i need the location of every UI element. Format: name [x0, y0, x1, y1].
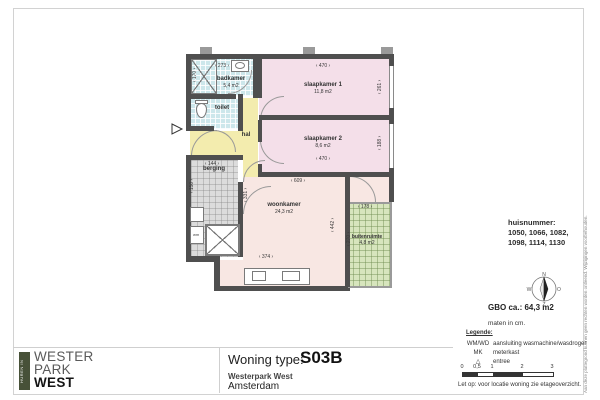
scale-tick-1: 1	[490, 364, 493, 370]
dim-sk1-height: 261	[377, 73, 383, 101]
label-toilet: toilet	[204, 105, 240, 112]
scale-seg-2	[478, 373, 493, 376]
wc-tank	[195, 100, 208, 104]
label-hal: hal	[232, 132, 260, 139]
titleblock-left-divider	[219, 347, 220, 393]
legend-key-wmwd: WM/WD	[466, 340, 490, 349]
scale-tick-0: 0	[460, 364, 463, 370]
scale-seg-4	[523, 373, 553, 376]
dim-berging-width: 144	[194, 161, 230, 167]
wall-hal-sk1-upper	[258, 54, 262, 98]
titleblock-top-divider	[13, 347, 453, 348]
huisnummer-label: huisnummer:	[508, 218, 556, 227]
dim-badkamer-width: 273	[202, 63, 242, 69]
entree-triangle-marker	[170, 122, 184, 136]
dim-berging-height: 150	[189, 173, 195, 199]
city-name: Amsterdam	[228, 381, 279, 392]
label-slaapkamer1: slaapkamer 1 11,8 m2	[293, 82, 353, 95]
floorplan-sheet: wm badkamer 5,4 m2 toilet hal berging sl…	[0, 0, 600, 400]
legend-value-wmwd: aansluiting wasmachine/wasdroger	[493, 340, 586, 349]
logo-line3: WEST	[34, 375, 74, 390]
logo-green-bar: HUREN IN	[19, 352, 30, 390]
huisnummer-block: huisnummer: 1050, 1066, 1082, 1098, 1114…	[508, 218, 580, 248]
wall-stub-3	[381, 47, 393, 54]
compass-o: O	[557, 287, 561, 293]
huisnummer-line2: 1098, 1114, 1130	[508, 238, 565, 247]
legend-title: Legende:	[466, 329, 586, 338]
gbo-area-text: GBO ca.: 64,3 m2	[488, 303, 554, 312]
label-woonkamer: woonkamer 24,3 m2	[254, 202, 314, 215]
location-note: Let op: voor locatie woning zie etageove…	[458, 382, 581, 388]
scale-tick-2: 2	[520, 364, 523, 370]
legend: Legende: WM/WD aansluiting wasmachine/wa…	[466, 329, 586, 367]
window-slaapkamer2	[389, 124, 394, 168]
scale-bar: 0 0,5 1 2 3	[458, 364, 568, 382]
compass-n: N	[542, 272, 546, 278]
shaft-box	[205, 224, 240, 256]
wall-sk2-woonkamer	[259, 172, 389, 177]
dim-woonkamer-width: 374	[248, 254, 284, 260]
disclaimer-vertical-text: Aan deze plattegrond kunnen geen rechten…	[583, 150, 592, 393]
meterkast-box	[190, 207, 204, 222]
wall-bottom	[214, 286, 350, 291]
huisnummer-line1: 1050, 1066, 1082,	[508, 228, 568, 237]
dim-balkon-width: 178	[347, 204, 383, 210]
wall-top	[186, 54, 394, 59]
dim-balkon-height: 270	[346, 226, 352, 252]
wall-stub-1	[200, 47, 212, 54]
dim-sk1-width: 470	[303, 63, 343, 69]
wall-toilet-right	[238, 94, 243, 131]
wall-sk1-sk2	[259, 115, 389, 120]
scale-tick-05: 0,5	[473, 364, 481, 370]
legend-value-mk: meterkast	[493, 349, 519, 358]
legend-row-mk: MK meterkast	[466, 349, 586, 358]
units-note: maten in cm.	[488, 320, 525, 327]
kitchen-hob	[282, 271, 300, 281]
window-slaapkamer1	[389, 66, 394, 108]
scale-seg-1	[463, 373, 478, 376]
label-slaapkamer2: slaapkamer 2 8,6 m2	[293, 136, 353, 149]
scale-tick-3: 3	[550, 364, 553, 370]
balcony-rail-bottom	[348, 286, 392, 288]
logo-vertical-text: HUREN IN	[19, 354, 30, 388]
wall-berging-top	[186, 155, 243, 160]
compass-rose: N O Z W	[526, 270, 562, 306]
dim-sk2-height: 188	[377, 129, 383, 157]
wall-stub-2	[303, 47, 315, 54]
wasmachine-label: wm	[193, 232, 199, 237]
dim-hal-wall-height: 331	[243, 181, 249, 209]
legend-row-wmwd: WM/WD aansluiting wasmachine/wasdroger	[466, 340, 586, 349]
logo-wordmark: WESTER PARK WEST	[34, 350, 94, 389]
dim-sk2-width: 470	[303, 156, 343, 162]
dim-shower-height: 170	[192, 63, 198, 87]
woning-type-label: Woning type:	[228, 352, 304, 367]
compass-w: W	[527, 287, 532, 293]
balcony-rail-right	[390, 202, 392, 288]
project-name: Westerpark West	[228, 372, 293, 381]
label-badkamer: badkamer 5,4 m2	[206, 76, 256, 89]
scale-bar-segments	[462, 372, 554, 377]
wall-toilet-bottom	[186, 126, 214, 131]
wall-badkamer-bottom	[186, 94, 236, 99]
label-berging: berging	[196, 166, 232, 173]
dim-woonkamer-top-width: 609	[278, 178, 318, 184]
scale-seg-3	[493, 373, 523, 376]
woning-type-value: S03B	[300, 348, 343, 368]
kitchen-sink	[252, 271, 266, 281]
legend-key-mk: MK	[466, 349, 490, 358]
room-woonkamer-step	[219, 260, 247, 286]
dim-woonkamer-height: 442	[330, 210, 336, 240]
